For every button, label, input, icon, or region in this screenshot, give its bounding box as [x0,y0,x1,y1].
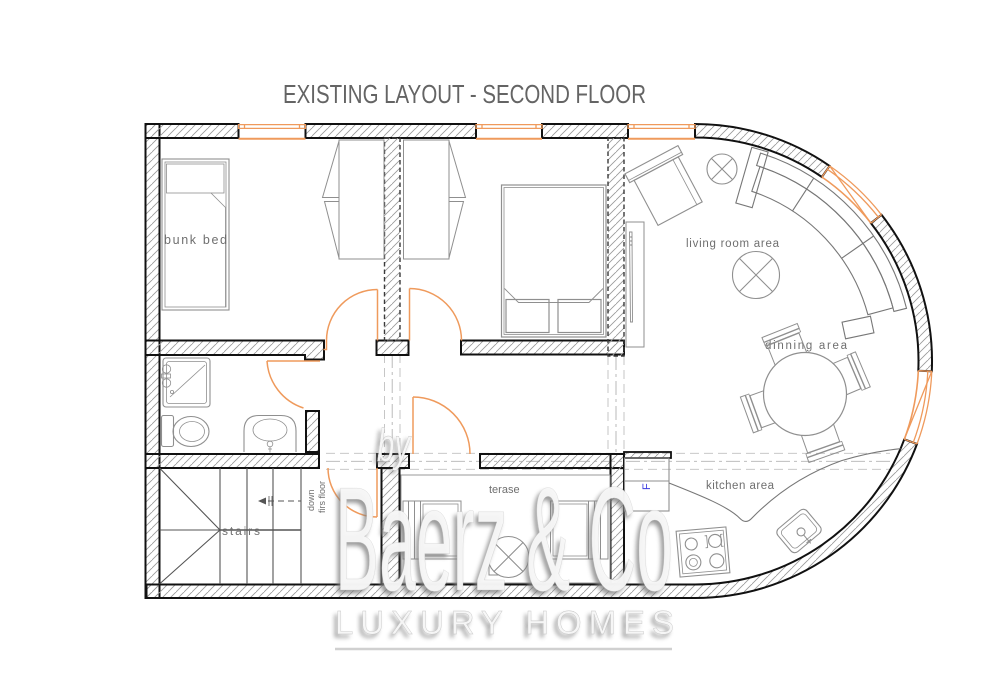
svg-text:kitchen area: kitchen area [706,480,775,492]
svg-text:Baerz & Co: Baerz & Co [335,457,673,622]
svg-text:bunk bed: bunk bed [164,233,227,247]
svg-text:living room area: living room area [686,238,780,250]
svg-text:firs floor: firs floor [317,481,327,513]
svg-text:EXISTING LAYOUT - SECOND FLOOR: EXISTING LAYOUT - SECOND FLOOR [283,81,646,109]
svg-text:stairs: stairs [222,524,260,538]
svg-text:down: down [306,489,316,511]
